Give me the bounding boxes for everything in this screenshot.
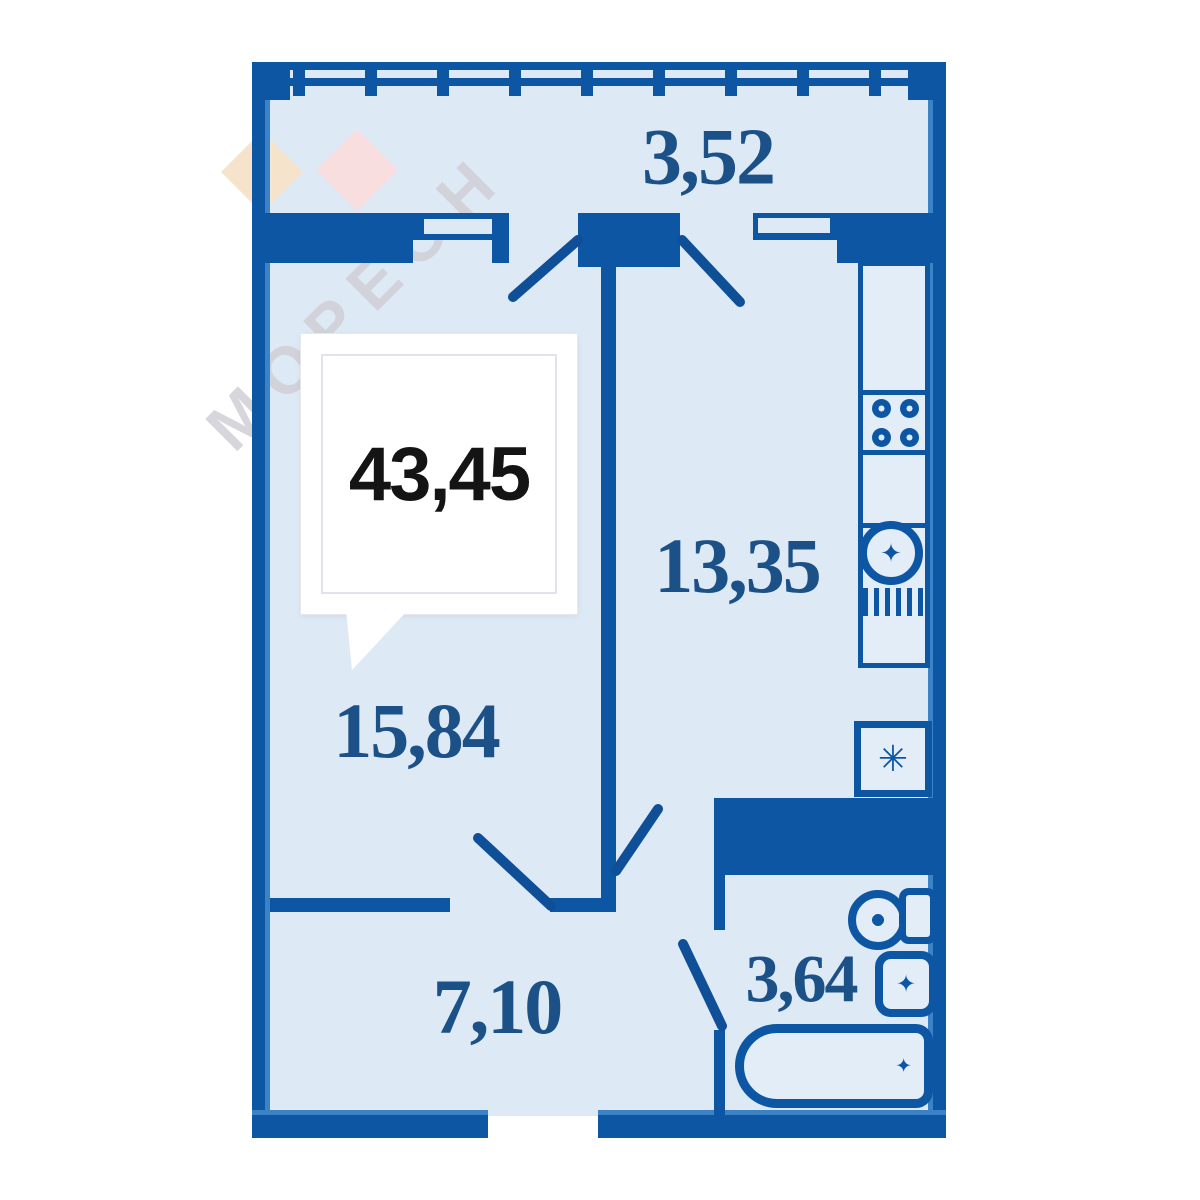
sink-drain-star-icon: ✦	[880, 538, 902, 569]
door-swing-bathroom	[683, 944, 722, 1026]
basin-star-icon: ✦	[896, 970, 916, 999]
toilet-tank-icon	[899, 888, 937, 944]
door-swing-living-room	[478, 838, 551, 906]
total-area-value: 43,45	[349, 431, 529, 518]
total-area-callout: 43,45	[300, 333, 578, 615]
total-area-frame: 43,45	[321, 354, 557, 594]
stove-burner-icon	[900, 399, 919, 418]
door-swing-lines	[0, 0, 1200, 1200]
snowflake-icon: ✳	[878, 738, 908, 780]
drainer-icon	[863, 588, 925, 616]
fridge-icon: ✳	[854, 721, 932, 797]
stove-burner-icon	[900, 428, 919, 447]
washbasin-icon: ✦	[875, 951, 937, 1017]
kitchen-area-label: 13,35	[654, 521, 820, 611]
door-swing-balcony-kitchen	[682, 240, 740, 302]
counter-divider	[863, 450, 925, 455]
kitchen-counter: ✦	[858, 261, 930, 668]
bathroom-area-label: 3,64	[746, 940, 857, 1019]
callout-tail	[330, 610, 450, 690]
living-area-label: 15,84	[333, 686, 499, 776]
door-swing-kitchen	[616, 809, 658, 871]
stove-burner-icon	[872, 399, 891, 418]
counter-divider	[863, 390, 925, 395]
tub-drain-icon: ✦	[895, 1054, 912, 1079]
stove-burner-icon	[872, 428, 891, 447]
bathtub-icon: ✦	[735, 1024, 933, 1108]
callout-tail-shape	[346, 610, 408, 670]
hallway-area-label: 7,10	[433, 962, 562, 1052]
balcony-area-label: 3,52	[642, 113, 774, 204]
sink-icon: ✦	[859, 521, 923, 585]
door-swing-balcony-living	[513, 240, 578, 297]
floor-plan: МОРЕОН ✦	[0, 0, 1200, 1200]
